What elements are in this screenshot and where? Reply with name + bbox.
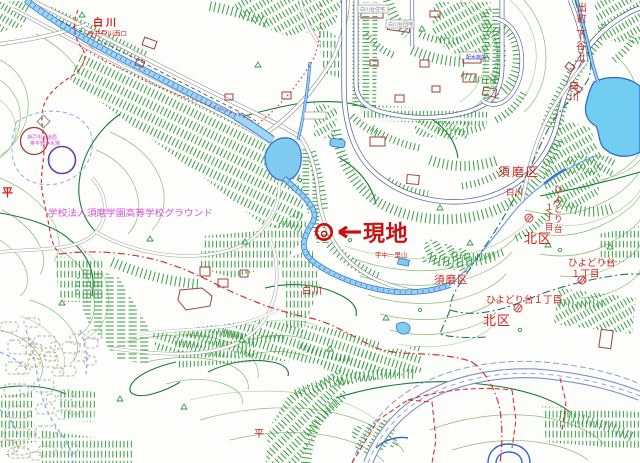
svg-text:須磨区: 須磨区 (434, 274, 469, 286)
svg-text:神戸市水道局: 神戸市水道局 (27, 134, 57, 141)
svg-text:１丁目: １丁目 (571, 269, 600, 280)
svg-text:ひよどり台１丁目: ひよどり台１丁目 (486, 294, 562, 306)
svg-text:現地: 現地 (363, 221, 408, 246)
svg-text:川: 川 (569, 93, 579, 104)
svg-text:須磨区: 須磨区 (498, 165, 540, 179)
svg-text:ど: ど (554, 204, 563, 214)
svg-text:白川台住宅: 白川台住宅 (360, 6, 385, 13)
svg-text:平: 平 (254, 429, 264, 440)
svg-text:下: 下 (576, 30, 586, 41)
svg-text:上: 上 (576, 52, 586, 64)
svg-text:丁: 丁 (545, 212, 554, 222)
svg-text:宇中一里山: 宇中一里山 (375, 250, 408, 259)
svg-text:北区: 北区 (524, 231, 552, 246)
svg-text:１: １ (545, 202, 554, 212)
svg-text:寺井戸川西口: 寺井戸川西口 (88, 29, 127, 38)
svg-text:町: 町 (577, 15, 587, 26)
svg-text:奥平野浄水場: 奥平野浄水場 (30, 140, 60, 147)
svg-text:学校法人須磨学園高等学校グラウンド: 学校法人須磨学園高等学校グラウンド (48, 207, 213, 218)
svg-text:り: り (554, 214, 563, 224)
svg-text:白: 白 (569, 79, 579, 92)
svg-text:白川台団地: 白川台団地 (388, 21, 413, 28)
svg-text:ひよどり台: ひよどり台 (568, 257, 616, 269)
svg-text:白川: 白川 (93, 16, 119, 29)
svg-text:ひ: ひ (554, 184, 563, 194)
svg-text:白川: 白川 (506, 187, 523, 197)
svg-text:谷: 谷 (576, 41, 586, 53)
svg-text:台: 台 (554, 224, 563, 234)
svg-text:配水施設: 配水施設 (466, 54, 486, 61)
svg-text:白川: 白川 (302, 285, 323, 297)
svg-text:出: 出 (577, 1, 587, 14)
svg-text:よ: よ (554, 194, 563, 204)
svg-text:平: 平 (2, 186, 13, 199)
svg-text:北区: 北区 (483, 313, 511, 328)
